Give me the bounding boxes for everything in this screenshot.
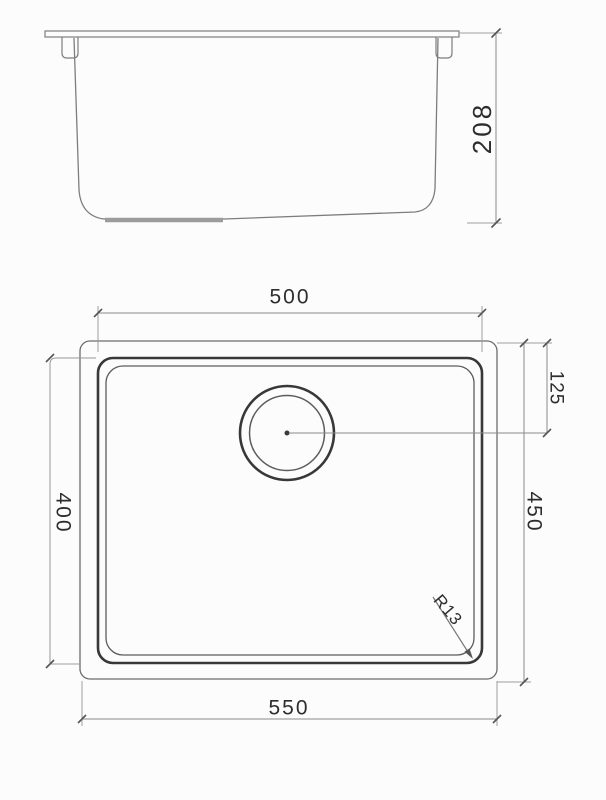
plan-bowl-inner-line	[106, 366, 474, 655]
side-elevation-view	[45, 29, 502, 228]
dimension-label-overall-length-450: 450	[524, 491, 545, 532]
mounting-clip-left	[62, 37, 78, 58]
plan-view	[46, 306, 552, 726]
side-bowl-profile	[74, 38, 438, 219]
dimension-label-overall-width-550: 550	[268, 698, 309, 719]
drain-center-point	[285, 431, 290, 436]
dimension-label-bowl-length-400: 400	[53, 492, 74, 533]
r13-leader-arrowhead	[465, 648, 474, 659]
dimension-label-bowl-width-500: 500	[269, 287, 310, 308]
side-rim	[45, 31, 459, 37]
technical-drawing-canvas: 208 500 550 400 450 125 R13	[0, 0, 606, 800]
plan-bowl-rim	[98, 358, 482, 663]
sink-drawing	[0, 0, 606, 800]
plan-outer-edge	[80, 341, 497, 679]
dimension-label-height-208: 208	[469, 102, 495, 154]
dimension-label-drain-offset-125: 125	[547, 371, 566, 406]
